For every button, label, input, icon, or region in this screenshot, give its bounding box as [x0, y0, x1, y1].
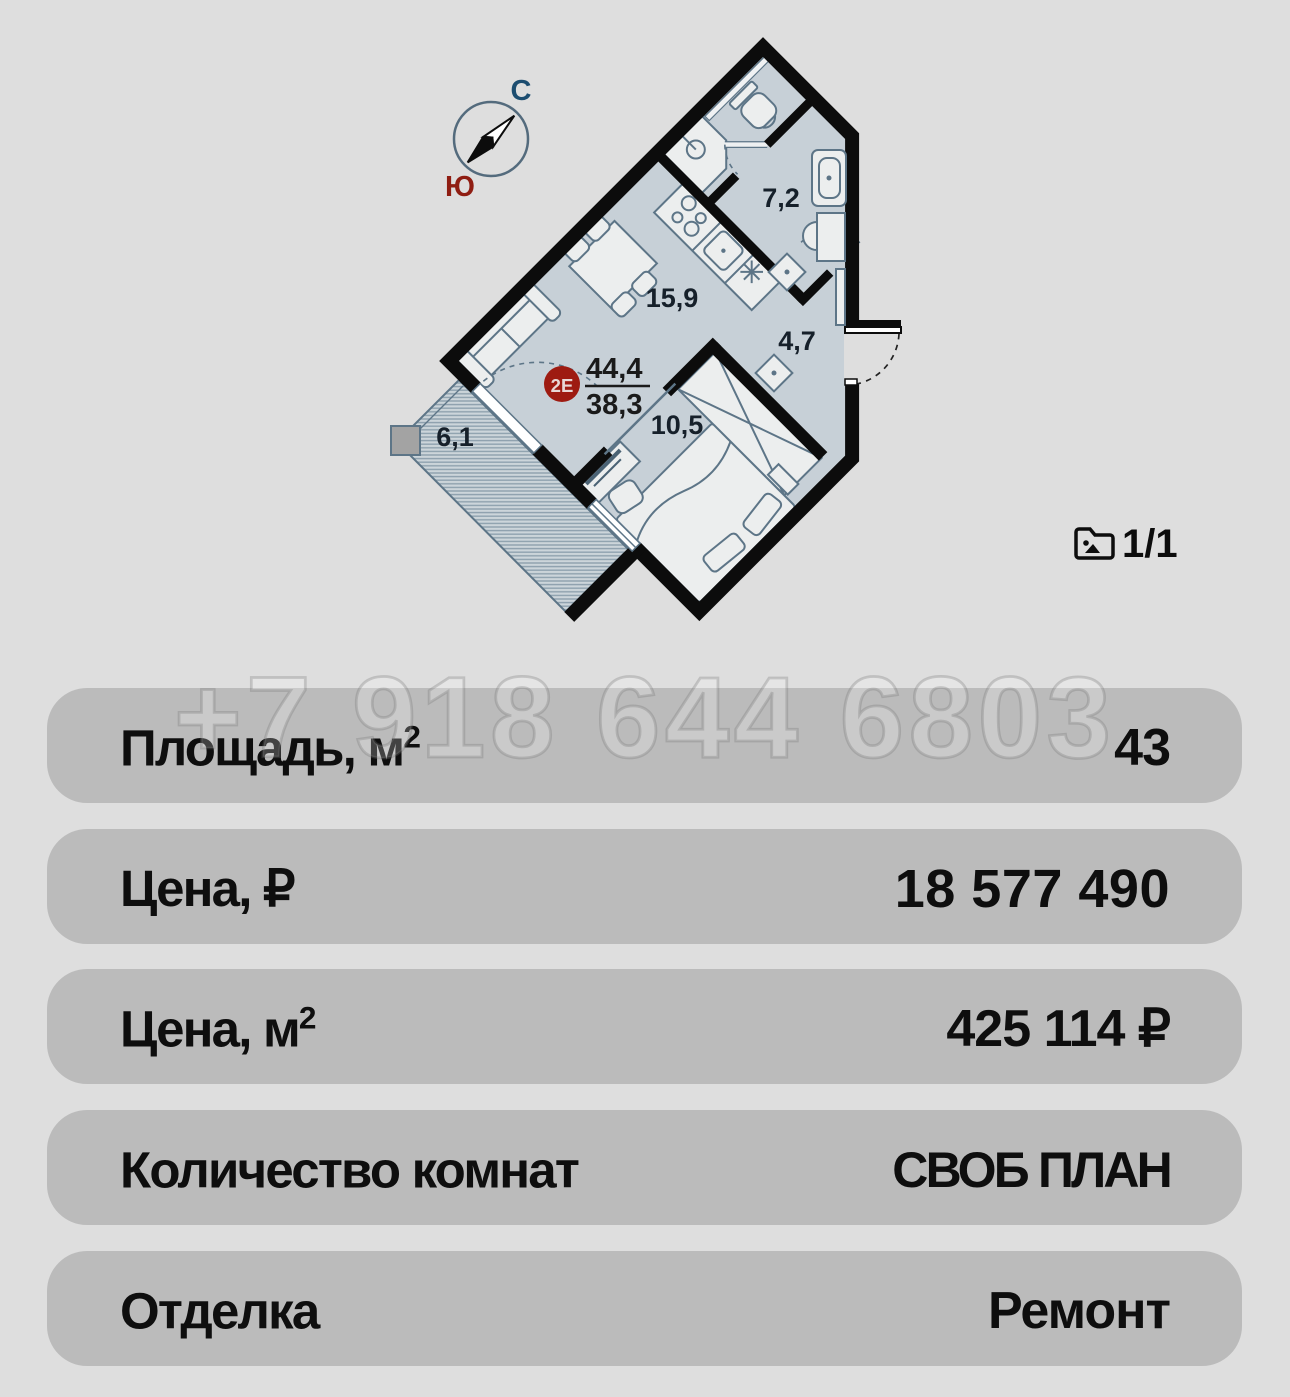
svg-text:44,4: 44,4 [586, 353, 642, 385]
svg-text:7,2: 7,2 [762, 183, 800, 213]
svg-text:15,9: 15,9 [646, 283, 699, 313]
svg-text:1/1: 1/1 [1122, 522, 1178, 566]
svg-text:Ю: Ю [445, 171, 475, 203]
svg-text:38,3: 38,3 [586, 389, 642, 421]
svg-text:С: С [511, 75, 532, 107]
svg-text:4,7: 4,7 [778, 326, 816, 356]
svg-text:2Е: 2Е [551, 375, 574, 396]
svg-text:10,5: 10,5 [651, 410, 704, 440]
svg-text:6,1: 6,1 [436, 422, 474, 452]
